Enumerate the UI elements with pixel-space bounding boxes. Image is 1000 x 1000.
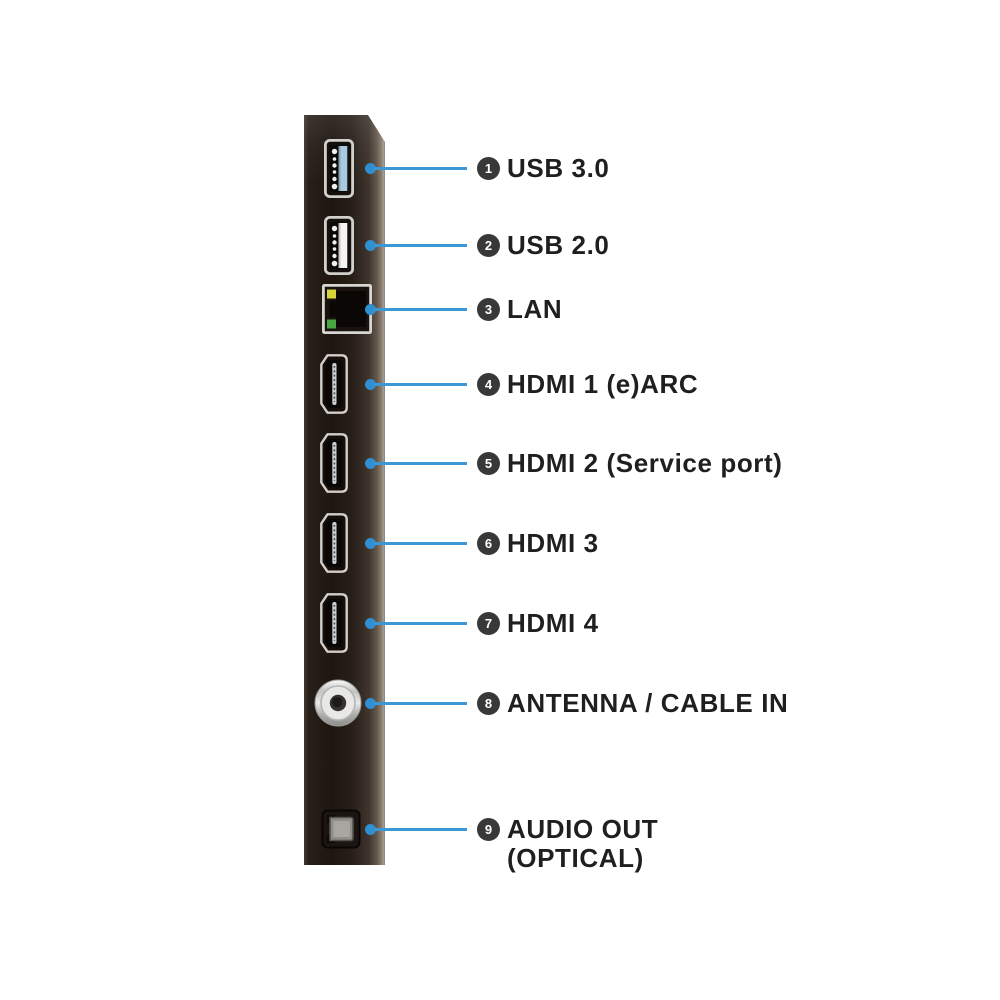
port-number-badge: 8 (477, 692, 500, 715)
port-label: HDMI 3 (507, 530, 599, 557)
port-number-badge: 6 (477, 532, 500, 555)
connector-line (374, 622, 467, 625)
port-number-badge: 5 (477, 452, 500, 475)
connector-line (374, 308, 467, 311)
diagram-canvas: 1USB 3.0 2USB 2.0 3LAN 4HDMI 1 (e)ARC 5H… (0, 0, 1000, 1000)
port-label: ANTENNA / CABLE IN (507, 690, 788, 717)
connector-line (374, 828, 467, 831)
port-number-badge: 2 (477, 234, 500, 257)
port-label: USB 3.0 (507, 155, 609, 182)
hdmi-port-icon (320, 354, 348, 414)
usb3-port-icon (324, 139, 354, 198)
port-number-badge: 7 (477, 612, 500, 635)
port-number-badge: 1 (477, 157, 500, 180)
connector-line (374, 462, 467, 465)
connector-line (374, 702, 467, 705)
coax-antenna-port-icon (314, 679, 362, 727)
port-label: LAN (507, 296, 562, 323)
connector-line (374, 167, 467, 170)
connector-line (374, 542, 467, 545)
hdmi-port-icon (320, 513, 348, 573)
optical-audio-port-icon (321, 809, 361, 849)
hdmi-port-icon (320, 433, 348, 493)
port-label: HDMI 4 (507, 610, 599, 637)
port-number-badge: 9 (477, 818, 500, 841)
port-label: HDMI 1 (e)ARC (507, 371, 698, 398)
port-number-badge: 3 (477, 298, 500, 321)
hdmi-port-icon (320, 593, 348, 653)
port-label: HDMI 2 (Service port) (507, 450, 783, 477)
connector-line (374, 383, 467, 386)
port-label: USB 2.0 (507, 232, 609, 259)
usb2-port-icon (324, 216, 354, 275)
port-number-badge: 4 (477, 373, 500, 396)
connector-line (374, 244, 467, 247)
port-label: AUDIO OUT (OPTICAL) (507, 815, 707, 873)
